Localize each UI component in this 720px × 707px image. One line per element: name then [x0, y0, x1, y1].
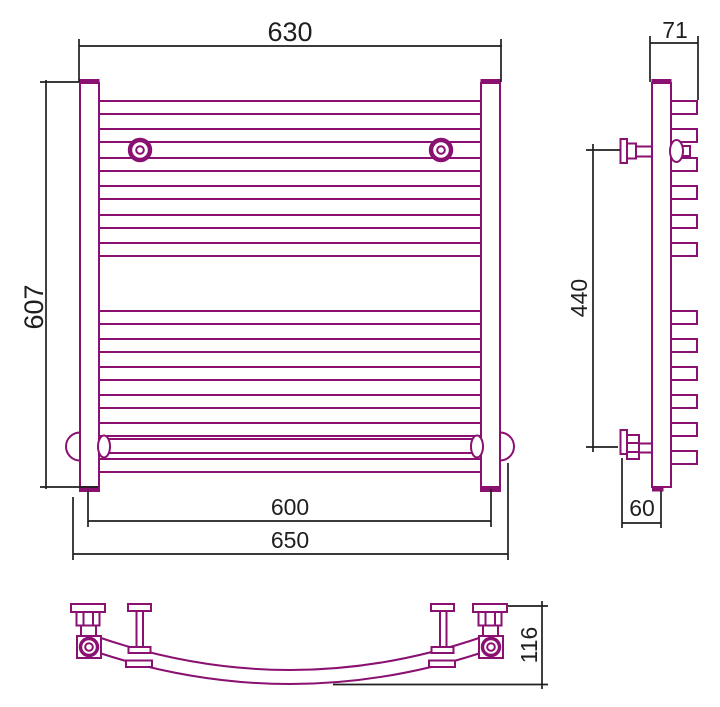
rung [99, 186, 481, 199]
bottom-rail-arc [98, 637, 482, 684]
drawing-canvas: 630 607 600 650 [0, 0, 720, 707]
dim-label-650: 650 [271, 527, 309, 553]
front-bottom-rail [99, 439, 481, 453]
radiator-drawing: 630 607 600 650 [0, 0, 720, 707]
collector-cap-left [80, 79, 100, 84]
dim-label-630: 630 [267, 17, 312, 47]
rung [99, 311, 481, 324]
side-view: 71 440 60 [566, 17, 698, 528]
corner-valve-right [473, 604, 507, 658]
side-wall-bracket-top [621, 139, 653, 163]
bracket-pin-right [437, 146, 445, 154]
front-view: 630 607 600 650 [19, 17, 514, 560]
collector-left [80, 83, 99, 487]
rail-union-left [98, 436, 110, 458]
bottom-view: 116 [71, 601, 548, 689]
dim-width-connections: 600 [88, 489, 491, 527]
rail-union-right [471, 436, 483, 458]
dim-label-116: 116 [516, 627, 542, 664]
front-rungs-top [99, 101, 481, 256]
rung [99, 423, 481, 436]
side-wall-bracket-bottom [621, 430, 653, 459]
bracket-pin-left [136, 146, 144, 154]
collector-cap-right [481, 79, 501, 84]
dim-bracket-spacing: 440 [566, 144, 620, 452]
rung [99, 459, 481, 472]
dim-label-71: 71 [662, 17, 688, 43]
rung [99, 367, 481, 380]
side-collector-foot [652, 487, 664, 492]
dim-label-600: 600 [271, 494, 309, 520]
rung [99, 158, 481, 171]
rung [99, 129, 481, 142]
corner-valve-left [71, 604, 105, 658]
dim-label-60: 60 [629, 495, 655, 521]
rung [99, 215, 481, 228]
rung [99, 395, 481, 408]
rail-end-right [500, 433, 514, 461]
side-collector [652, 79, 672, 492]
rung [99, 243, 481, 256]
side-collector-cap [652, 79, 672, 84]
collector-right [481, 83, 500, 487]
rail-end-left [66, 433, 80, 461]
rung [99, 339, 481, 352]
dim-label-440: 440 [566, 279, 592, 317]
dim-label-607: 607 [19, 284, 49, 329]
rung [99, 101, 481, 114]
dim-width-top: 630 [79, 17, 502, 82]
